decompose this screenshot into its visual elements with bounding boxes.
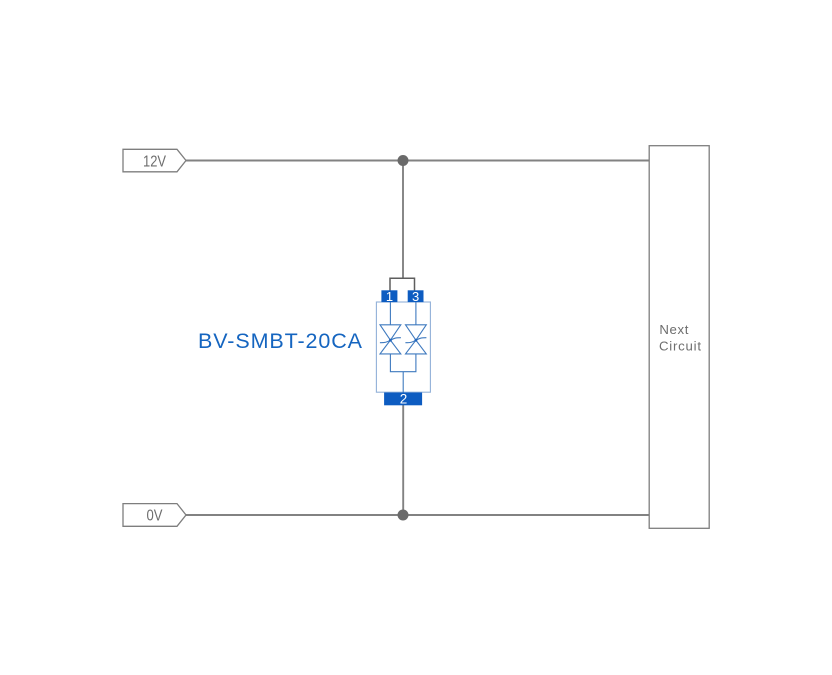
svg-text:1: 1: [386, 289, 393, 304]
svg-text:3: 3: [412, 289, 419, 304]
svg-text:0V: 0V: [147, 508, 163, 525]
svg-text:12V: 12V: [143, 153, 166, 170]
svg-text:2: 2: [400, 392, 408, 407]
svg-text:Next: Next: [659, 322, 688, 337]
svg-text:Circuit: Circuit: [659, 339, 701, 354]
svg-text:BV-SMBT-20CA: BV-SMBT-20CA: [198, 329, 363, 353]
